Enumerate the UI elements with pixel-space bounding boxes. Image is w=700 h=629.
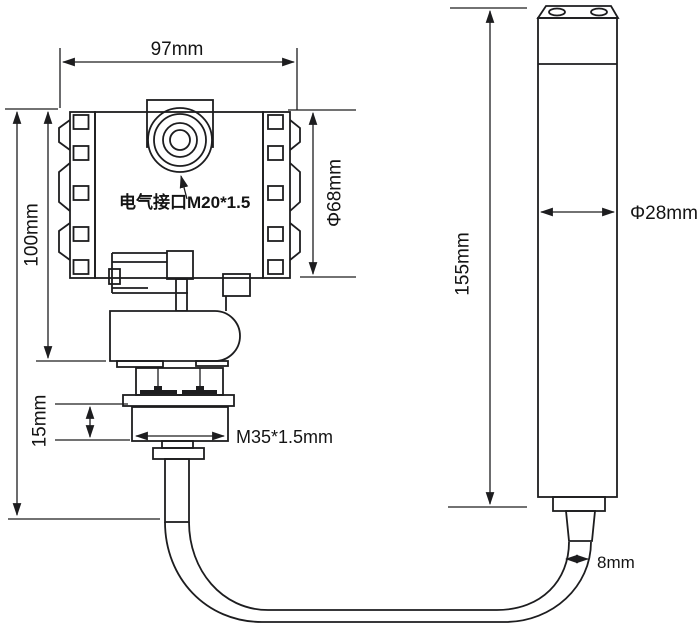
terminal-bar-left — [140, 390, 177, 394]
collar — [153, 448, 204, 459]
probe-top-hole-right — [591, 9, 607, 16]
dimension-15mm: 15mm — [30, 395, 131, 448]
label-155mm: 155mm — [453, 232, 474, 295]
hex-nut-section — [136, 368, 223, 395]
label-electrical-port: 电气接口M20*1.5 — [119, 192, 250, 212]
probe-top-face — [538, 6, 618, 18]
transmitter-body — [59, 100, 300, 522]
dimension-155mm: 155mm — [448, 8, 527, 507]
dimension-cable-8mm: 8mm — [566, 553, 635, 572]
technical-drawing: 电气接口M20*1.5 97mm 100mm Φ68mm 15mm M35*1.… — [0, 0, 700, 629]
label-dia-68mm: Φ68mm — [325, 159, 346, 227]
label-100mm: 100mm — [22, 203, 43, 266]
neck — [162, 441, 193, 448]
flange-plate — [123, 395, 234, 406]
dimension-thread-m35: M35*1.5mm — [136, 427, 333, 447]
label-97mm: 97mm — [151, 39, 204, 60]
label-m35: M35*1.5mm — [236, 427, 333, 447]
probe-bottom-collar — [553, 497, 605, 511]
drawing-canvas: 电气接口M20*1.5 97mm 100mm Φ68mm 15mm M35*1.… — [0, 0, 700, 629]
dimension-dia-28mm: Φ28mm — [541, 203, 698, 224]
probe-shaft — [538, 18, 617, 497]
dimension-dia-68mm: Φ68mm — [300, 113, 356, 277]
down-pipe — [165, 459, 189, 522]
cable — [165, 522, 591, 622]
process-flange — [110, 311, 240, 367]
label-dia-28mm: Φ28mm — [630, 203, 698, 224]
probe-cable-gland — [566, 511, 595, 541]
dimension-100mm: 100mm — [22, 112, 107, 361]
conduit-outer-ring — [148, 108, 212, 172]
left-end-cap — [59, 112, 95, 278]
terminal-bar-right — [182, 390, 217, 394]
label-15mm: 15mm — [30, 395, 51, 448]
probe-top-hole-left — [549, 9, 565, 16]
probe — [538, 6, 618, 541]
label-8mm: 8mm — [597, 553, 635, 572]
electrical-port-callout: 电气接口M20*1.5 — [119, 176, 250, 212]
right-end-cap — [263, 112, 300, 278]
junction-bracket — [109, 251, 250, 311]
